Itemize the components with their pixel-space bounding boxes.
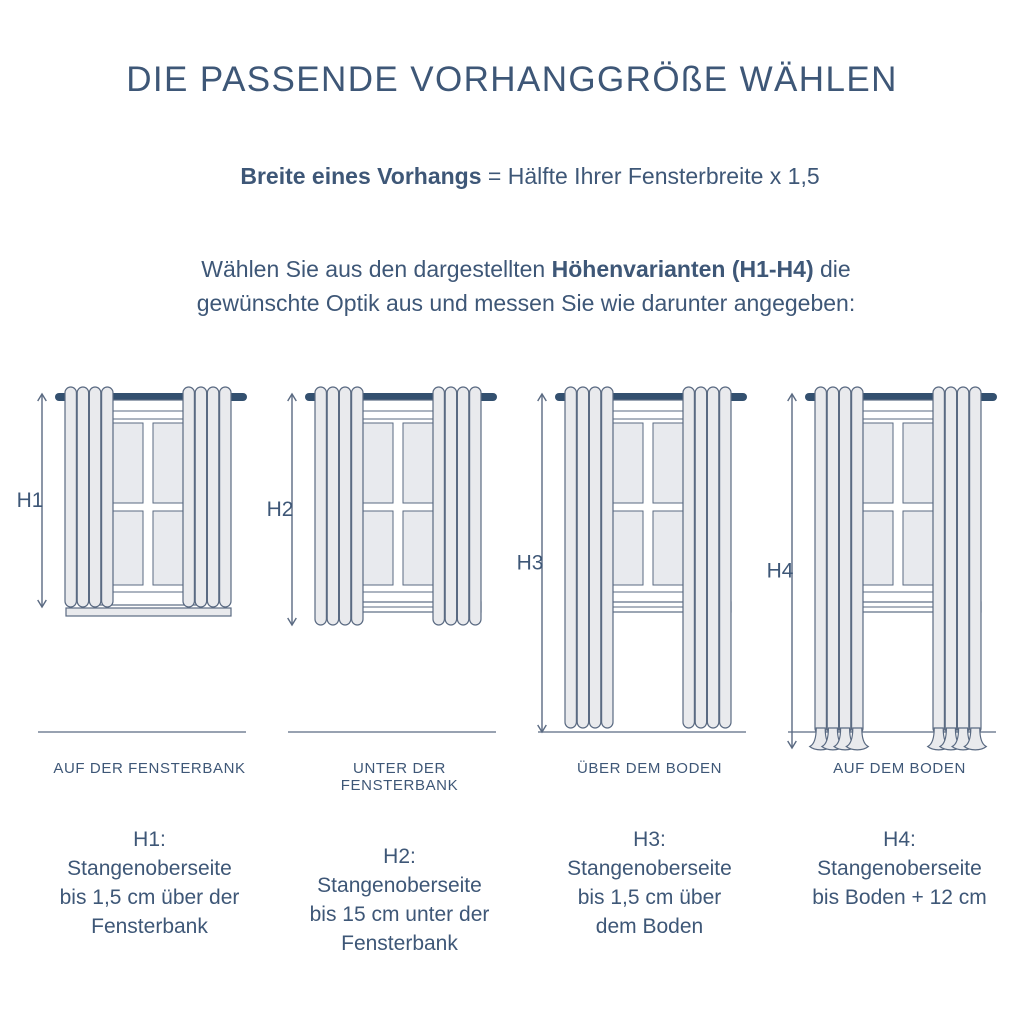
curtain-fold [339, 387, 350, 625]
curtain-fold [683, 387, 694, 728]
variant-description: H3: Stangenoberseite bis 1,5 cm über dem… [528, 825, 753, 941]
variant-description: H4: Stangenoberseite bis Boden + 12 cm [778, 825, 1003, 912]
position-label: AUF DEM BODEN [778, 760, 1003, 777]
curtain-fold [77, 387, 88, 607]
curtain-panel [683, 387, 731, 728]
curtain-fold [589, 387, 600, 728]
curtain-fold [433, 387, 444, 625]
curtain-fold [445, 387, 456, 625]
height-variant-label: H2 [267, 498, 294, 521]
curtain-fold [102, 387, 113, 607]
curtain-fold [707, 387, 718, 728]
curtain-panel [315, 387, 363, 625]
formula-rest: = Hälfte Ihrer Fensterbreite x 1,5 [488, 163, 820, 189]
page-title: DIE PASSENDE VORHANGGRÖßE WÄHLEN [0, 60, 1024, 100]
curtain-panel [928, 387, 987, 750]
curtain-panel [183, 387, 231, 607]
curtain-fold [220, 387, 231, 607]
curtain-fold [565, 387, 576, 728]
formula-term: Breite eines Vorhangs [240, 163, 481, 189]
curtain-illustration-h1: H1 [28, 380, 253, 755]
curtain-panel [565, 387, 613, 728]
window-sill [66, 608, 231, 616]
curtain-fold [933, 387, 944, 734]
curtain-fold [207, 387, 218, 607]
curtain-panel [433, 387, 481, 625]
position-label: ÜBER DEM BODEN [528, 760, 753, 777]
curtain-fold [183, 387, 194, 607]
curtain-fold [89, 387, 100, 607]
variant-column-h4: H4 AUF DEM BODEN H4: Stangenoberseite bi… [778, 380, 1003, 912]
curtain-fold [839, 387, 850, 734]
curtain-illustration-h4: H4 [778, 380, 1003, 755]
position-label: AUF DER FENSTERBANK [28, 760, 253, 777]
curtain-panel [810, 387, 869, 750]
variant-description: H1: Stangenoberseite bis 1,5 cm über der… [28, 825, 253, 941]
curtain-panel [65, 387, 113, 607]
curtain-fold [695, 387, 706, 728]
position-label: UNTER DER FENSTERBANK [278, 760, 503, 794]
height-variant-label: H1 [17, 489, 44, 512]
curtain-fold [327, 387, 338, 625]
curtain-fold [352, 387, 363, 625]
curtain-fold [720, 387, 731, 728]
curtain-fold [315, 387, 326, 625]
curtain-fold [827, 387, 838, 734]
curtain-fold [602, 387, 613, 728]
variant-description: H2: Stangenoberseite bis 15 cm unter der… [278, 842, 503, 958]
width-formula: Breite eines Vorhangs = Hälfte Ihrer Fen… [18, 163, 1024, 190]
instruction-text: Wählen Sie aus den dargestellten Höhenva… [14, 252, 1024, 320]
curtain-fold [957, 387, 968, 734]
variant-column-h2: H2 UNTER DER FENSTERBANK H2: Stangenober… [278, 380, 503, 958]
instruction-line-1: Wählen Sie aus den dargestellten Höhenva… [14, 252, 1024, 286]
curtain-fold [470, 387, 481, 625]
curtain-fold [852, 387, 863, 734]
variant-column-h3: H3 ÜBER DEM BODEN H3: Stangenoberseite b… [528, 380, 753, 941]
curtain-illustration-h3: H3 [528, 380, 753, 755]
instruction-line-2: gewünschte Optik aus und messen Sie wie … [14, 286, 1024, 320]
instruction-bold: Höhenvarianten (H1-H4) [552, 256, 814, 282]
curtain-fold [945, 387, 956, 734]
instruction-post: die [820, 256, 851, 282]
curtain-fold [457, 387, 468, 625]
height-variant-label: H4 [767, 560, 794, 583]
variant-column-h1: H1 AUF DER FENSTERBANK H1: Stangenoberse… [28, 380, 253, 941]
curtain-illustration-h2: H2 [278, 380, 503, 755]
curtain-fold [65, 387, 76, 607]
curtain-fold [195, 387, 206, 607]
curtain-fold [815, 387, 826, 734]
curtain-fold [970, 387, 981, 734]
height-variant-label: H3 [517, 552, 544, 575]
instruction-pre: Wählen Sie aus den dargestellten [201, 256, 545, 282]
curtain-fold [577, 387, 588, 728]
